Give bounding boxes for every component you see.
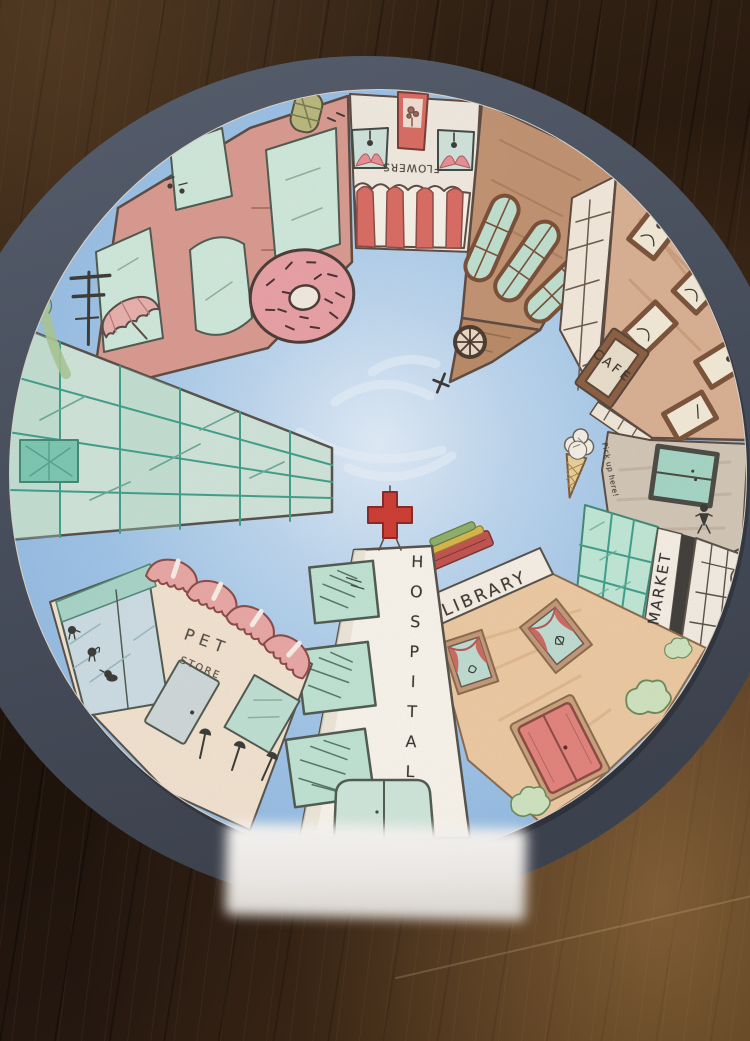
flower-shop-label: FLOWERS: [375, 161, 447, 174]
photo-of-drawing: FLOWERS CAFE Pick up here! MARKET LIBRAR…: [0, 0, 750, 1041]
paper-grain: [10, 90, 746, 860]
blurred-name-tag: [225, 823, 527, 921]
